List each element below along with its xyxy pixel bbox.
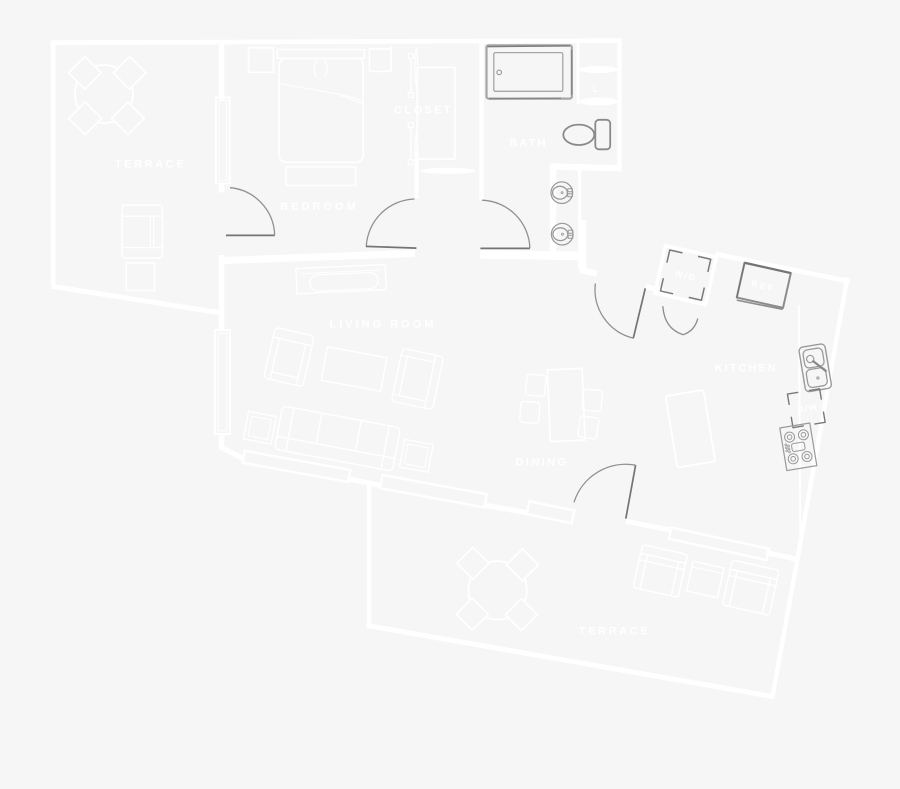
svg-text:LIVING ROOM: LIVING ROOM <box>330 319 437 331</box>
svg-text:TERRACE: TERRACE <box>579 626 650 638</box>
svg-text:CLOSET: CLOSET <box>394 104 453 116</box>
svg-text:BEDROOM: BEDROOM <box>280 201 358 213</box>
svg-text:DINING: DINING <box>516 457 569 469</box>
svg-text:BATH: BATH <box>509 138 548 150</box>
svg-text:KITCHEN: KITCHEN <box>715 363 778 375</box>
svg-text:L: L <box>593 84 599 94</box>
svg-text:TERRACE: TERRACE <box>115 159 186 171</box>
